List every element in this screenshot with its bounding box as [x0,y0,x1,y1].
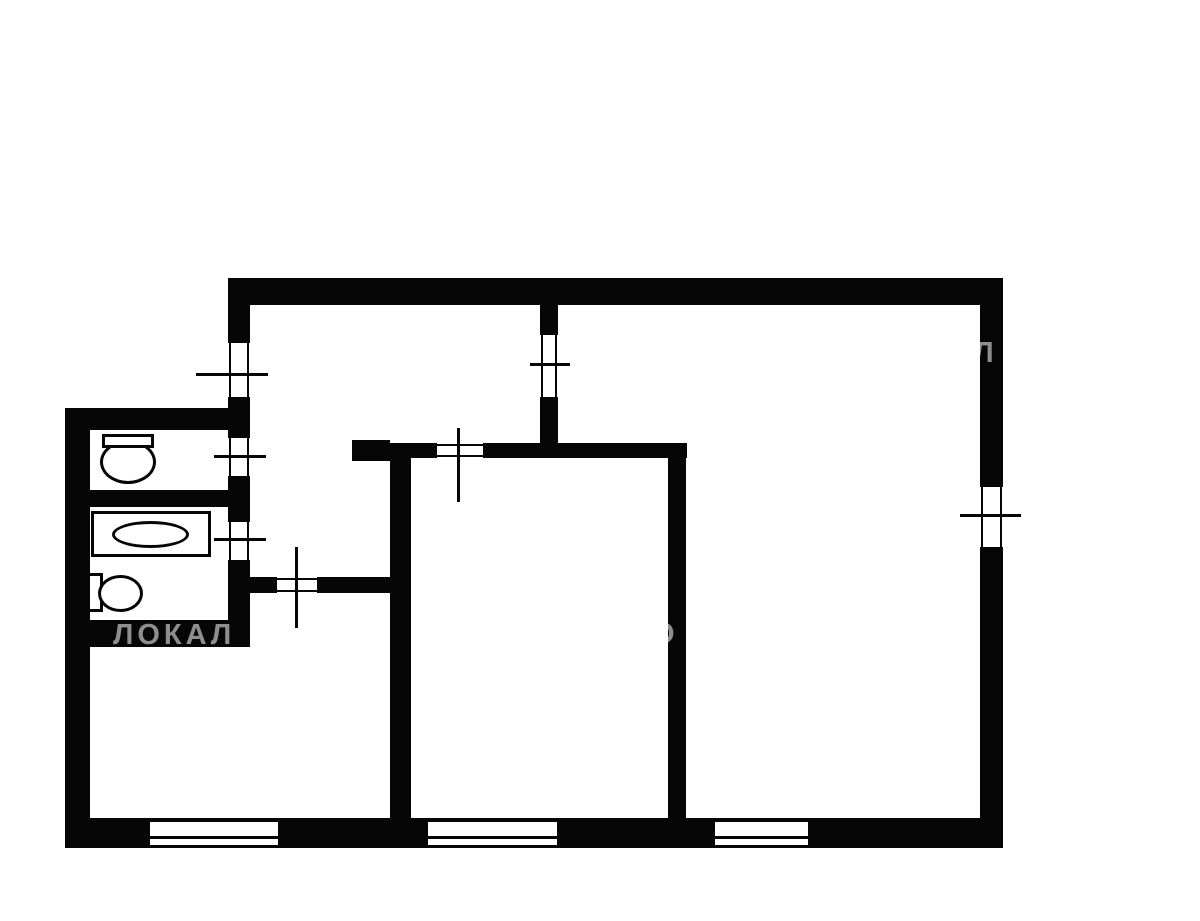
bottom-window-right-mid-line [715,836,808,839]
bottom-window-left-sill-line [150,845,278,848]
left-room-window-tick [196,373,268,376]
left-room-window-pane [229,343,231,397]
kitchen-top-opening-tick [457,428,460,502]
right-room-window-pane [981,487,983,547]
floor-plan: ЛОКАЛОАЛ [0,0,1200,921]
divider-opening-pane [555,335,557,397]
toilet2-bowl [98,575,143,612]
hall-south-door-tick [295,547,298,628]
top-wall [228,278,1003,305]
kitchen-top-opening-pane [437,455,483,457]
utility-top-wall [65,408,250,430]
bottom-window-middle-sill-line [428,845,557,848]
toilet-tank [102,434,154,448]
wc-bath-divider [83,490,230,507]
bathtub-basin [112,521,189,548]
watermark-text: О [652,620,679,649]
right-room-window-pane [1000,487,1002,547]
bottom-window-left-mid-line [150,836,278,839]
bathroom-door-pane [229,522,231,560]
right-room-window-tick [960,514,1021,517]
bathroom-door-tick [214,538,266,541]
bathroom-door-pane [247,522,249,560]
watermark-text: ЛОКАЛ [113,621,235,650]
bottom-window-middle-mid-line [428,836,557,839]
divider-opening-tick [530,363,570,366]
left-room-window-pane [247,343,249,397]
kitchen-west-wall [390,450,411,848]
kitchen-top-stub [352,440,390,461]
hall-south-wall [245,577,395,593]
wc-door-tick [214,455,266,458]
watermark-text: АЛ [948,339,998,368]
bottom-window-right-sill-line [715,845,808,848]
divider-opening-pane [541,335,543,397]
kitchen-top-opening-pane [437,444,483,446]
